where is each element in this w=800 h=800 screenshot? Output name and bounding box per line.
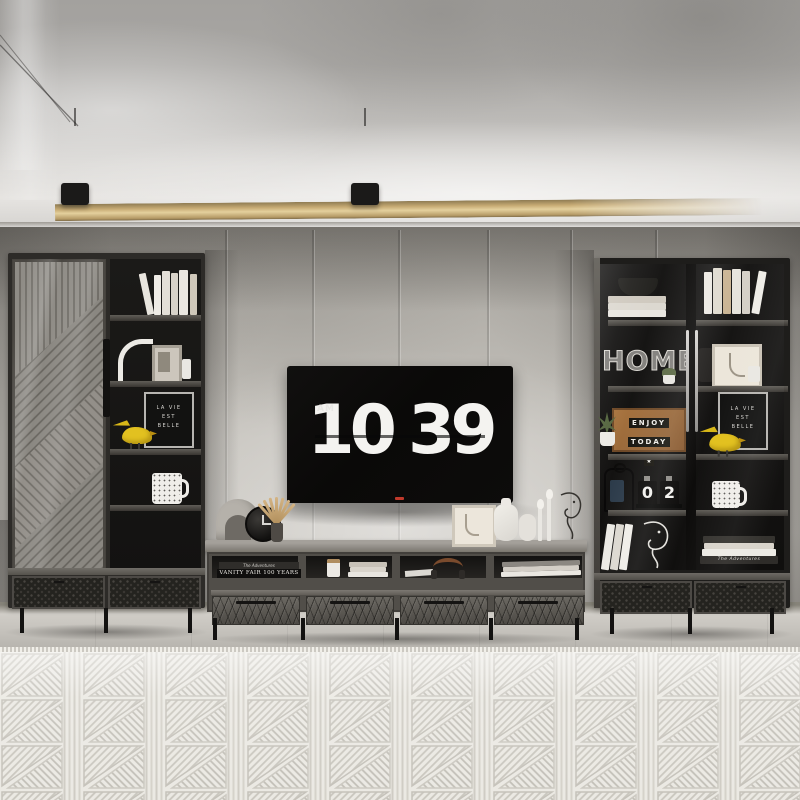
- track-light-box: [61, 183, 89, 205]
- book-spine-title: VANITY FAIR 100 YEARS: [217, 569, 301, 578]
- cabinet-leg: [20, 608, 24, 633]
- shelf: [110, 315, 201, 321]
- arc-lamp: [118, 339, 153, 382]
- pampas-grass-vase: [258, 486, 298, 542]
- cabinet-leg: [770, 608, 774, 634]
- book-spine-title: The Adventures: [219, 562, 299, 569]
- cabinet-leg: [610, 608, 614, 634]
- headphones: [433, 558, 463, 577]
- glass-door-reflection: [600, 264, 784, 570]
- flip-clock-minutes: 39: [408, 392, 493, 470]
- drawer-handle: [518, 601, 558, 604]
- console-leg: [489, 618, 493, 640]
- flip-clock-meridiem: AM: [317, 404, 335, 414]
- book-spine: [162, 271, 170, 315]
- track-light-box: [351, 183, 379, 205]
- small-vase: [271, 523, 283, 542]
- left-cabinet-shelves: LA VIE EST BELLE: [110, 259, 201, 571]
- console-leg: [575, 618, 579, 640]
- tv-console: The Adventures VANITY FAIR 100 YEARS: [205, 540, 587, 618]
- drawer-handle: [424, 601, 464, 604]
- living-room-photo: 10 39 AM: [0, 0, 800, 800]
- chevron-drawer: [306, 596, 394, 625]
- shelf: [110, 505, 201, 511]
- book-spine: [171, 273, 178, 315]
- mesh-drawer: [108, 576, 201, 609]
- wall-mounted-tv: 10 39 AM: [287, 366, 513, 503]
- left-display-cabinet: LA VIE EST BELLE: [8, 253, 205, 608]
- leaning-book: [139, 273, 155, 316]
- left-cabinet-door-handle: [103, 339, 110, 417]
- floor-shadow: [590, 626, 794, 642]
- candlestick: [547, 498, 551, 541]
- cabinet-rail: [8, 568, 205, 575]
- wall-ceiling-junction: [0, 222, 800, 227]
- book-spine: [179, 270, 188, 315]
- right-display-cabinet: HOME ENJOY TODAY ★ LA VIE EST BELLE: [594, 258, 790, 608]
- chevron-drawer: [494, 596, 584, 625]
- mesh-drawer: [12, 576, 105, 609]
- stacked-book: [348, 572, 388, 577]
- ceiling-wires: [0, 0, 800, 170]
- candlestick: [538, 508, 542, 541]
- console-open-shelf: The Adventures VANITY FAIR 100 YEARS: [212, 556, 298, 578]
- stacked-book: [349, 562, 387, 567]
- candle-jar: [327, 559, 340, 577]
- cabinet-leg: [188, 608, 192, 633]
- wire-face-sculpture: [553, 489, 587, 541]
- patterned-mug: [152, 473, 182, 504]
- door-reflection: [12, 259, 104, 571]
- white-vase: [519, 514, 536, 541]
- console-rail: [211, 590, 585, 595]
- console-leg: [301, 618, 305, 640]
- console-leg: [213, 618, 217, 640]
- letter-board-line: LA VIE: [146, 404, 192, 413]
- shelf: [110, 381, 201, 387]
- drawer-handle: [236, 601, 276, 604]
- console-leg: [395, 618, 399, 640]
- frame-image: [158, 352, 170, 372]
- cabinet-rail: [594, 573, 790, 580]
- chevron-drawer: [400, 596, 488, 625]
- photo-frame: [152, 345, 182, 385]
- yellow-bird-figurine: [701, 427, 749, 456]
- white-vase: [494, 504, 518, 541]
- console-body: The Adventures VANITY FAIR 100 YEARS: [207, 552, 585, 612]
- candle: [182, 359, 191, 379]
- cabinet-leg: [688, 608, 692, 634]
- stacked-book: [350, 567, 386, 572]
- cabinet-leg: [104, 608, 108, 633]
- chevron-drawer: [212, 596, 300, 625]
- flip-clock-split-line: [315, 435, 485, 438]
- frame-sketch: [465, 514, 479, 536]
- geometric-rug: [0, 652, 800, 800]
- photo-frame: [452, 505, 496, 547]
- candle-lid: [327, 559, 340, 563]
- shelf: [110, 449, 201, 455]
- book-spine: [154, 275, 161, 315]
- yellow-bird-figurine: [114, 421, 160, 449]
- tv-brand-logo: [395, 497, 404, 500]
- book-spine: [190, 274, 197, 315]
- drawer-handle: [330, 601, 370, 604]
